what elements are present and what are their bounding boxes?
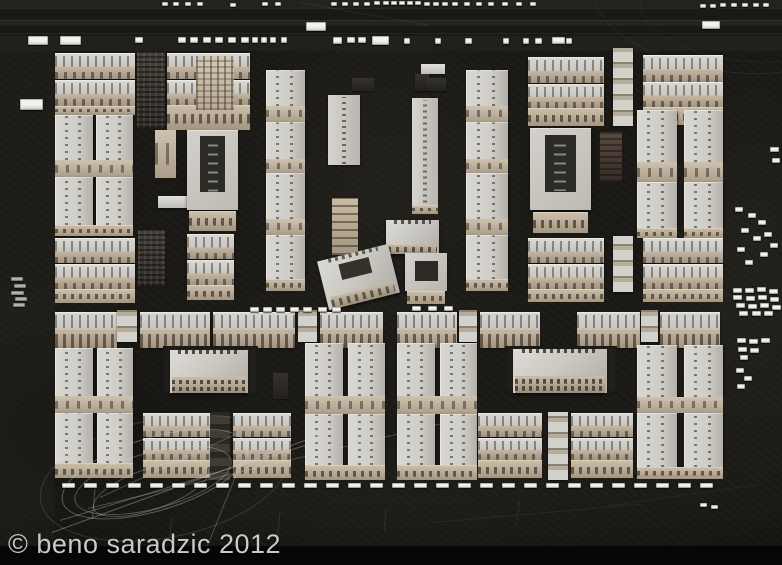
vehicle bbox=[769, 289, 778, 294]
vehicle bbox=[748, 304, 757, 309]
vehicle bbox=[711, 505, 718, 509]
vehicle bbox=[535, 38, 542, 44]
vehicle bbox=[150, 483, 163, 488]
vehicle bbox=[20, 99, 43, 110]
vehicle bbox=[764, 232, 772, 237]
vehicle bbox=[678, 483, 691, 488]
vehicle bbox=[763, 3, 769, 7]
vehicle bbox=[270, 37, 276, 43]
vehicle bbox=[735, 207, 743, 212]
vehicle bbox=[770, 147, 779, 152]
vehicle bbox=[172, 483, 185, 488]
vehicle bbox=[757, 287, 766, 292]
vehicle bbox=[516, 2, 522, 6]
vehicle bbox=[275, 2, 281, 6]
vehicle bbox=[203, 37, 211, 43]
vehicle bbox=[634, 483, 647, 488]
vehicle bbox=[749, 339, 758, 344]
vehicle bbox=[772, 305, 781, 310]
vehicle bbox=[488, 2, 494, 6]
vehicle bbox=[358, 37, 366, 43]
vehicle bbox=[128, 483, 141, 488]
vehicle bbox=[758, 220, 766, 225]
vehicle bbox=[372, 36, 389, 45]
vehicle bbox=[11, 291, 24, 295]
vehicle bbox=[306, 22, 326, 31]
vehicle bbox=[173, 2, 179, 6]
vehicle bbox=[11, 277, 23, 281]
vehicle bbox=[15, 297, 27, 301]
vehicle bbox=[282, 483, 295, 488]
vehicle bbox=[736, 368, 744, 373]
vehicle bbox=[700, 483, 713, 488]
vehicle bbox=[252, 37, 258, 43]
vehicle bbox=[342, 2, 348, 6]
vehicles-layer bbox=[0, 0, 782, 565]
vehicle bbox=[84, 483, 97, 488]
vehicle bbox=[700, 503, 707, 507]
watermark-text: © beno saradzic 2012 bbox=[8, 529, 281, 560]
vehicle bbox=[590, 483, 603, 488]
aerial-photo: © beno saradzic 2012 bbox=[0, 0, 782, 565]
vehicle bbox=[737, 384, 745, 389]
vehicle bbox=[415, 1, 421, 5]
vehicle bbox=[770, 297, 779, 302]
vehicle bbox=[303, 307, 312, 312]
vehicle bbox=[746, 296, 755, 301]
vehicle bbox=[745, 260, 753, 265]
vehicle bbox=[433, 2, 439, 6]
vehicle bbox=[444, 306, 453, 311]
vehicle bbox=[333, 37, 342, 44]
vehicle bbox=[60, 36, 81, 45]
vehicle bbox=[435, 38, 441, 44]
vehicle bbox=[370, 483, 383, 488]
vehicle bbox=[392, 483, 405, 488]
vehicle bbox=[742, 3, 748, 7]
vehicle bbox=[424, 2, 430, 6]
vehicle bbox=[428, 306, 437, 311]
vehicle bbox=[216, 483, 229, 488]
vehicle bbox=[412, 306, 421, 311]
vehicle bbox=[737, 338, 746, 343]
vehicle bbox=[656, 483, 669, 488]
vehicle bbox=[750, 348, 759, 353]
vehicle bbox=[523, 38, 529, 44]
vehicle bbox=[552, 37, 565, 44]
vehicle bbox=[758, 295, 767, 300]
vehicle bbox=[530, 2, 536, 6]
vehicle bbox=[761, 338, 770, 343]
vehicle bbox=[304, 483, 317, 488]
vehicle bbox=[740, 355, 748, 360]
vehicle bbox=[230, 3, 236, 7]
vehicle bbox=[464, 2, 470, 6]
vehicle bbox=[228, 37, 236, 43]
vehicle bbox=[190, 37, 198, 43]
vehicle bbox=[374, 1, 380, 5]
vehicle bbox=[612, 483, 625, 488]
vehicle bbox=[162, 2, 168, 6]
vehicle bbox=[260, 483, 273, 488]
vehicle bbox=[702, 21, 720, 29]
vehicle bbox=[326, 483, 339, 488]
vehicle bbox=[353, 2, 359, 6]
vehicle bbox=[276, 307, 285, 312]
vehicle bbox=[566, 38, 572, 44]
vehicle bbox=[318, 307, 327, 312]
vehicle bbox=[263, 307, 272, 312]
vehicle bbox=[503, 38, 509, 44]
vehicle bbox=[739, 311, 748, 316]
vehicle bbox=[14, 284, 26, 288]
vehicle bbox=[480, 483, 493, 488]
vehicle bbox=[290, 307, 299, 312]
vehicle bbox=[331, 2, 337, 6]
vehicle bbox=[700, 4, 706, 8]
vehicle bbox=[733, 295, 742, 300]
vehicle bbox=[414, 483, 427, 488]
vehicle bbox=[720, 3, 726, 7]
vehicle bbox=[250, 307, 259, 312]
vehicle bbox=[753, 3, 759, 7]
vehicle bbox=[28, 36, 48, 45]
vehicle bbox=[185, 2, 191, 6]
vehicle bbox=[241, 37, 249, 43]
vehicle bbox=[215, 37, 223, 43]
vehicle bbox=[178, 37, 186, 43]
vehicle bbox=[106, 483, 119, 488]
vehicle bbox=[404, 38, 410, 44]
vehicle bbox=[238, 483, 251, 488]
vehicle bbox=[436, 483, 449, 488]
vehicle bbox=[745, 288, 754, 293]
vehicle bbox=[458, 483, 471, 488]
vehicle bbox=[407, 1, 413, 5]
vehicle bbox=[736, 303, 745, 308]
vehicle bbox=[281, 37, 287, 43]
vehicle bbox=[760, 303, 769, 308]
vehicle bbox=[135, 37, 143, 43]
vehicle bbox=[744, 376, 752, 381]
vehicle bbox=[770, 243, 778, 248]
vehicle bbox=[733, 288, 742, 293]
vehicle bbox=[524, 483, 537, 488]
vehicle bbox=[753, 236, 761, 241]
vehicle bbox=[748, 213, 756, 218]
vehicle bbox=[741, 228, 749, 233]
vehicle bbox=[383, 1, 389, 5]
vehicle bbox=[465, 38, 472, 44]
vehicle bbox=[391, 1, 397, 5]
vehicle bbox=[194, 483, 207, 488]
vehicle bbox=[452, 2, 458, 6]
vehicle bbox=[348, 483, 361, 488]
vehicle bbox=[261, 37, 267, 43]
vehicle bbox=[568, 483, 581, 488]
vehicle bbox=[737, 247, 745, 252]
vehicle bbox=[332, 307, 341, 312]
vehicle bbox=[546, 483, 559, 488]
vehicle bbox=[347, 37, 355, 43]
vehicle bbox=[364, 2, 370, 6]
vehicle bbox=[399, 1, 405, 5]
vehicle bbox=[772, 158, 780, 163]
vehicle bbox=[752, 311, 761, 316]
vehicle bbox=[764, 311, 773, 316]
vehicle bbox=[502, 483, 515, 488]
vehicle bbox=[738, 347, 747, 352]
vehicle bbox=[710, 4, 716, 8]
vehicle bbox=[760, 252, 768, 257]
vehicle bbox=[13, 303, 25, 307]
vehicle bbox=[502, 2, 508, 6]
vehicle bbox=[197, 2, 203, 6]
vehicle bbox=[442, 2, 448, 6]
vehicle bbox=[476, 2, 482, 6]
vehicle bbox=[262, 2, 268, 6]
vehicle bbox=[731, 3, 737, 7]
vehicle bbox=[62, 483, 75, 488]
